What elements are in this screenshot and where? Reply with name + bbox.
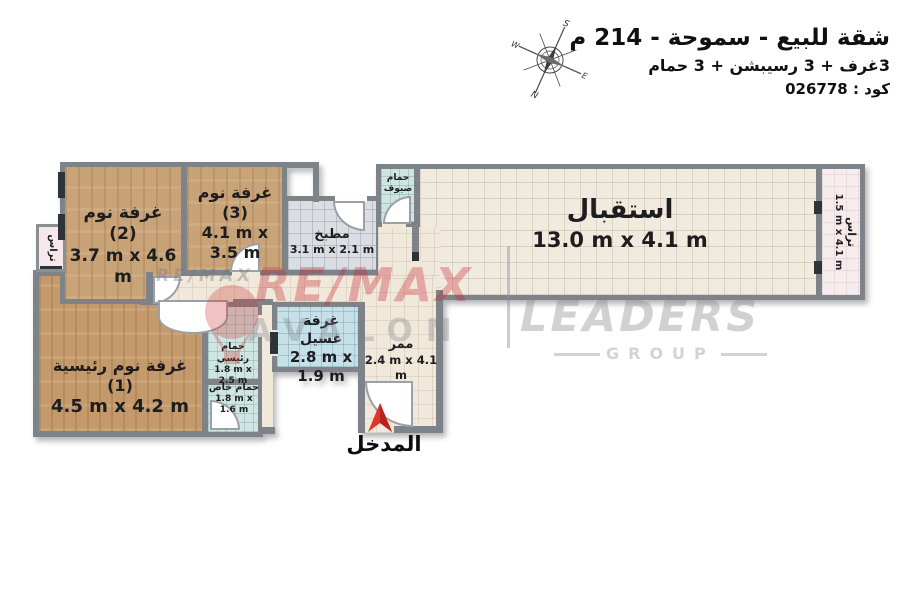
wall-segment: [233, 299, 273, 305]
window-marker: [58, 214, 65, 240]
room-dims: 1.5 m x 4.1 m: [832, 172, 845, 292]
room-name: تراس: [46, 218, 59, 278]
room-name: مطبخ: [288, 227, 376, 243]
door-arc: [158, 300, 228, 334]
room-name: استقبال: [460, 194, 780, 227]
entrance-arrow-icon: [366, 402, 394, 434]
room-dims: 3.1 m x 2.1 m: [288, 243, 376, 257]
label-kitchen: مطبخ 3.1 m x 2.1 m: [288, 227, 376, 257]
room-dims: 2.8 m x 1.9 m: [280, 348, 362, 386]
label-guest-bath: حمام ضيوف: [380, 173, 416, 195]
room-name: غرفة نوم (2): [68, 203, 178, 246]
label-terrace-left: تراس: [44, 218, 58, 278]
room-name: غرفة غسيل: [280, 313, 362, 348]
wall-segment: [313, 162, 319, 202]
door-jamb: [270, 332, 278, 354]
room-dims: 4.1 m x 3.5 m: [185, 223, 285, 263]
room-name: غرفة نوم رئيسية (1): [45, 356, 195, 396]
label-laundry: غرفة غسيل 2.8 m x 1.9 m: [280, 313, 362, 386]
room-dims: 3.7 m x 4.6 m: [68, 246, 178, 289]
window-marker: [58, 172, 65, 198]
label-private-bath: حمام خاص 1.8 m x 1.6 m: [207, 382, 261, 416]
floorplan-page: شقة للبيع - سموحة - 214 م 3غرف + 3 رسيبش…: [0, 0, 900, 599]
entrance-label: المدخل: [336, 432, 432, 456]
room-dims: 13.0 m x 4.1 m: [460, 227, 780, 253]
label-terrace-right: تراس 1.5 m x 4.1 m: [822, 172, 858, 292]
label-master-bedroom: غرفة نوم رئيسية (1) 4.5 m x 4.2 m: [45, 356, 195, 419]
window-marker: [814, 201, 822, 214]
wall-segment: [258, 427, 275, 434]
room-dims: 2.4 m x 4.1 m: [362, 353, 440, 382]
wall-opening: [258, 315, 266, 337]
room-name: حمام رئيسي: [205, 341, 261, 365]
label-bedroom3: غرفة نوم (3) 4.1 m x 3.5 m: [185, 183, 285, 263]
window-marker: [814, 261, 822, 274]
room-name: تراس: [844, 172, 858, 292]
label-reception: استقبال 13.0 m x 4.1 m: [460, 194, 780, 253]
label-bedroom2: غرفة نوم (2) 3.7 m x 4.6 m: [68, 203, 178, 288]
label-master-bath: حمام رئيسي 1.8 m x 2.5 m: [205, 341, 261, 387]
room-name: غرفة نوم (3): [185, 183, 285, 223]
room-dims: 1.8 m x 1.6 m: [207, 394, 261, 417]
wall-opening: [414, 261, 422, 295]
door-jamb: [412, 252, 419, 261]
room-name: ممر: [362, 337, 440, 353]
room-name: حمام خاص: [207, 382, 261, 394]
room-name: حمام ضيوف: [380, 173, 416, 195]
room-dims: 4.5 m x 4.2 m: [45, 396, 195, 419]
hallway-connector: [378, 227, 440, 276]
floorplan: غرفة نوم (2) 3.7 m x 4.6 m غرفة نوم (3) …: [0, 0, 900, 599]
label-corridor: ممر 2.4 m x 4.1 m: [362, 337, 440, 382]
